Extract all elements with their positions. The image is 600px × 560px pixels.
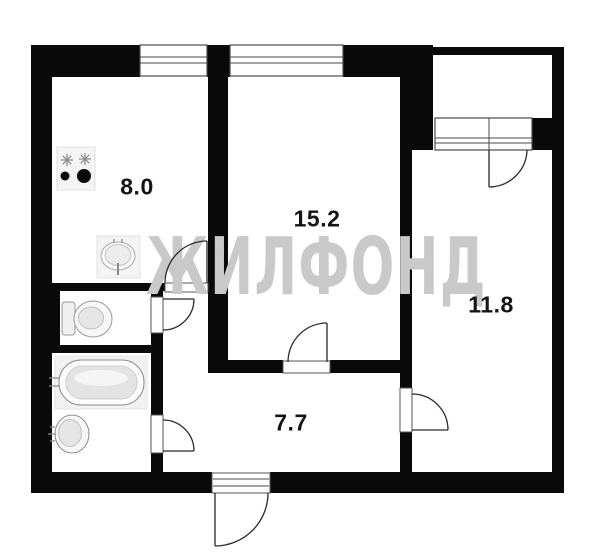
bathroom-door (163, 420, 194, 451)
kitchen-area-label: 8.0 (120, 174, 153, 201)
bedroom-area-label: 11.8 (468, 292, 514, 319)
door-arc (163, 420, 194, 451)
balcony-door (489, 150, 527, 187)
entrance-door (215, 493, 268, 546)
door-arc (215, 493, 268, 546)
door-arc (288, 323, 327, 362)
wc-door (163, 299, 194, 330)
floor-plan: ЖИЛФОНД 8.0 15 (0, 0, 600, 560)
living-room-door (288, 323, 327, 362)
kitchen-door (165, 241, 207, 283)
hallway-area-label: 7.7 (274, 410, 307, 437)
door-arc (412, 394, 448, 430)
door-arc (489, 150, 527, 187)
living-area-label: 15.2 (294, 206, 341, 233)
door-arc (163, 299, 194, 330)
door-swings (0, 0, 600, 560)
bedroom-door (412, 394, 448, 430)
door-arc (165, 241, 207, 283)
